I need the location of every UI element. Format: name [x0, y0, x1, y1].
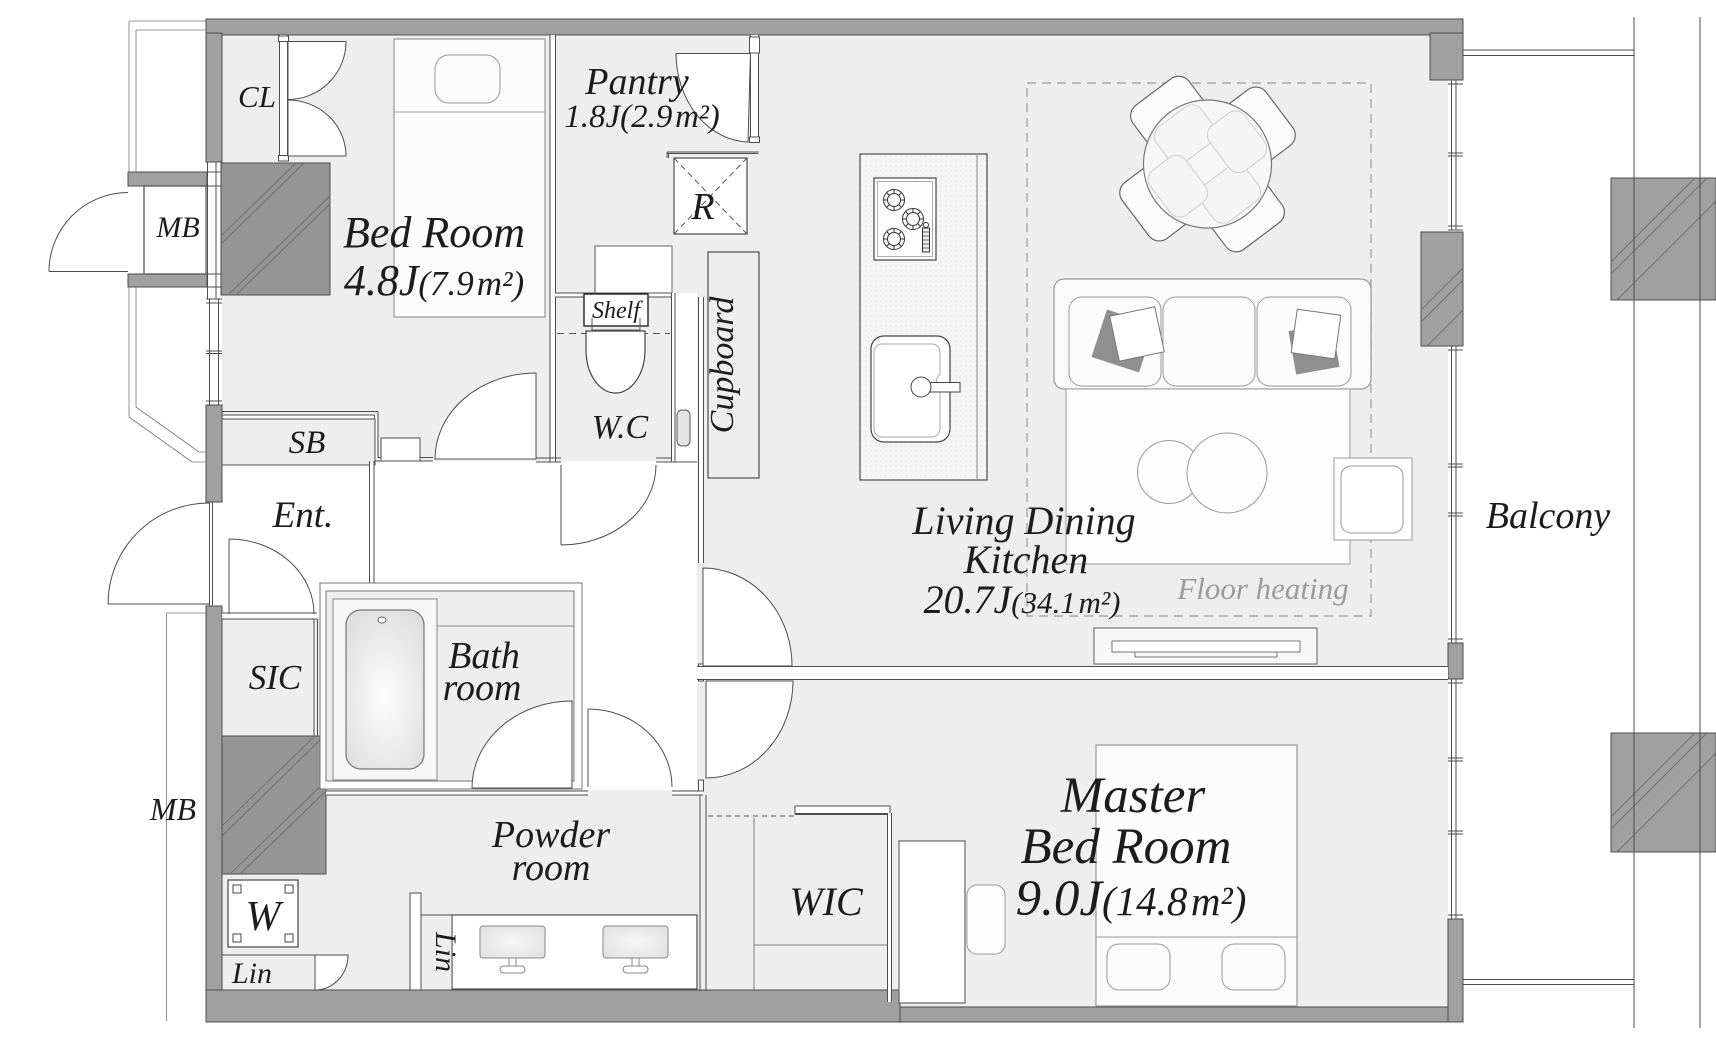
- svg-text:R: R: [690, 186, 714, 228]
- svg-text:Pantry: Pantry: [584, 61, 689, 103]
- svg-text:Balcony: Balcony: [1486, 495, 1611, 537]
- svg-text:Shelf: Shelf: [592, 298, 643, 324]
- svg-text:SB: SB: [289, 425, 326, 461]
- svg-text:1.8J(2.9 m²): 1.8J(2.9 m²): [564, 99, 720, 135]
- svg-text:Master: Master: [1060, 768, 1206, 824]
- svg-text:MB: MB: [155, 211, 199, 244]
- svg-text:SIC: SIC: [249, 658, 302, 697]
- svg-text:Ent.: Ent.: [272, 495, 334, 536]
- svg-text:room: room: [443, 667, 522, 709]
- svg-text:Lin: Lin: [231, 957, 272, 990]
- svg-text:Cupboard: Cupboard: [704, 296, 741, 434]
- svg-text:W.C: W.C: [592, 409, 649, 446]
- svg-text:Floor heating: Floor heating: [1176, 571, 1348, 606]
- svg-text:4.8J(7.9 m²): 4.8J(7.9 m²): [344, 256, 524, 305]
- svg-text:Bed Room: Bed Room: [343, 208, 525, 257]
- svg-text:CL: CL: [238, 79, 276, 114]
- svg-text:Lin: Lin: [429, 931, 462, 972]
- svg-text:WIC: WIC: [789, 879, 864, 924]
- svg-text:W: W: [246, 894, 285, 940]
- svg-text:9.0J(14.8 m²): 9.0J(14.8 m²): [1016, 871, 1247, 927]
- svg-text:Bed Room: Bed Room: [1020, 819, 1231, 875]
- svg-text:Kitchen: Kitchen: [963, 537, 1088, 582]
- svg-text:room: room: [512, 847, 591, 889]
- svg-text:MB: MB: [149, 791, 196, 827]
